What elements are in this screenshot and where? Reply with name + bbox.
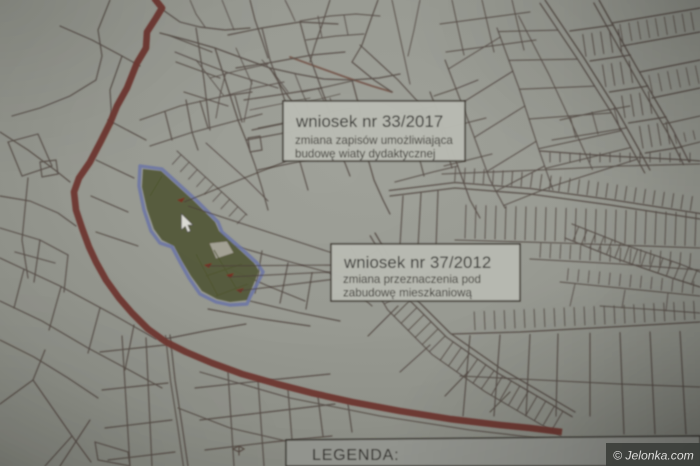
svg-text:© Jelonka.com: © Jelonka.com xyxy=(613,449,694,463)
